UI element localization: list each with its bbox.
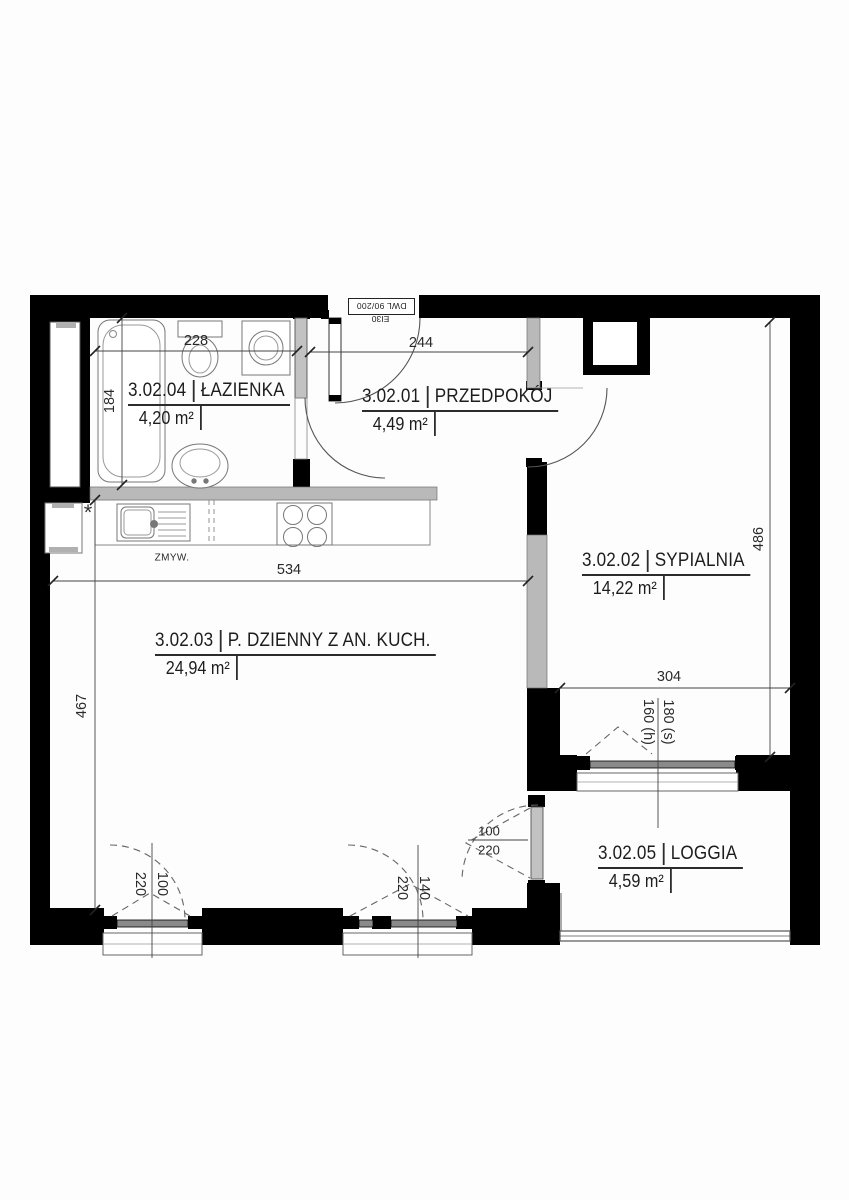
entrance-door-tag: DWL 90/200	[348, 298, 415, 315]
room-name: P. DZIENNY Z AN. KUCH.	[220, 630, 436, 652]
room-area: 4,49 m²	[362, 412, 436, 436]
room-title: 3.02.01 PRZEDPOKÓJ	[362, 386, 558, 412]
room-area: 24,94 m²	[155, 656, 238, 680]
room-label-sypialnia: 3.02.02 SYPIALNIA 14,22 m²	[582, 550, 750, 600]
entrance-door-leaf	[329, 318, 341, 401]
dim-kitchen-wall-width: 534	[277, 562, 301, 578]
washbasin	[172, 444, 228, 488]
floor-plan-drawing	[0, 0, 849, 1200]
washing-machine	[242, 321, 290, 375]
dim-bedroom-width: 304	[657, 669, 681, 685]
room-label-przedpokoj: 3.02.01 PRZEDPOKÓJ 4,49 m²	[362, 386, 558, 436]
entrance-door-cap-top	[329, 318, 341, 324]
dim-bathroom-width: 228	[184, 333, 208, 349]
room-area: 4,59 m²	[598, 869, 672, 893]
kitchen-sink	[117, 504, 190, 541]
fridge	[45, 503, 82, 553]
dim-living-depth: 467	[74, 694, 90, 718]
duct-void	[593, 322, 637, 365]
room-number: 3.02.01	[362, 386, 427, 408]
room-area: 4,20 m²	[128, 406, 202, 430]
room-title: 3.02.03 P. DZIENNY Z AN. KUCH.	[155, 630, 436, 656]
dishwasher-label: ZMYW.	[155, 553, 190, 564]
dim-bathroom-depth: 184	[102, 389, 118, 413]
floor-plan: 3.02.04 ŁAZIENKA 4,20 m² 3.02.01 PRZEDPO…	[0, 0, 849, 1200]
dim-left-window-height: 220	[132, 872, 148, 896]
dim-bedroom-depth: 486	[751, 527, 767, 551]
room-name: PRZEDPOKÓJ	[427, 386, 558, 408]
room-title: 3.02.02 SYPIALNIA	[582, 550, 750, 576]
wall-shaft	[50, 322, 80, 487]
dim-loggia-door-height: 220	[478, 843, 500, 858]
dim-loggia-door-width: 100	[478, 824, 500, 839]
room-title: 3.02.04 ŁAZIENKA	[128, 380, 290, 406]
room-number: 3.02.05	[598, 843, 663, 865]
room-label-pokoj-dzienny: 3.02.03 P. DZIENNY Z AN. KUCH. 24,94 m²	[155, 630, 436, 680]
dim-left-window-width: 100	[154, 872, 170, 896]
shaft-vent	[56, 322, 76, 328]
room-number: 3.02.02	[582, 550, 647, 572]
room-title: 3.02.05 LOGGIA	[598, 843, 743, 869]
room-area: 14,22 m²	[582, 576, 665, 600]
toilet	[178, 321, 222, 377]
room-name: LOGGIA	[663, 843, 743, 865]
room-label-loggia: 3.02.05 LOGGIA 4,59 m²	[598, 843, 743, 893]
dim-mid-window-width: 140	[416, 876, 432, 900]
room-name: ŁAZIENKA	[193, 380, 291, 402]
dim-bedroom-window-height: 160 (h)	[640, 699, 656, 745]
room-name: SYPIALNIA	[647, 550, 751, 572]
entrance-door-cap-bottom	[329, 395, 341, 401]
room-label-lazienka: 3.02.04 ŁAZIENKA 4,20 m²	[128, 380, 290, 430]
room-number: 3.02.04	[128, 380, 193, 402]
room-number: 3.02.03	[155, 630, 220, 652]
dim-bedroom-window-width: 180 (s)	[660, 699, 676, 744]
entrance-door-fire-rating: EI30	[348, 314, 413, 324]
note-asterisk: *	[84, 500, 93, 526]
stove	[277, 503, 332, 547]
dim-mid-window-height: 220	[394, 876, 410, 900]
dim-hall-width: 244	[409, 335, 433, 351]
